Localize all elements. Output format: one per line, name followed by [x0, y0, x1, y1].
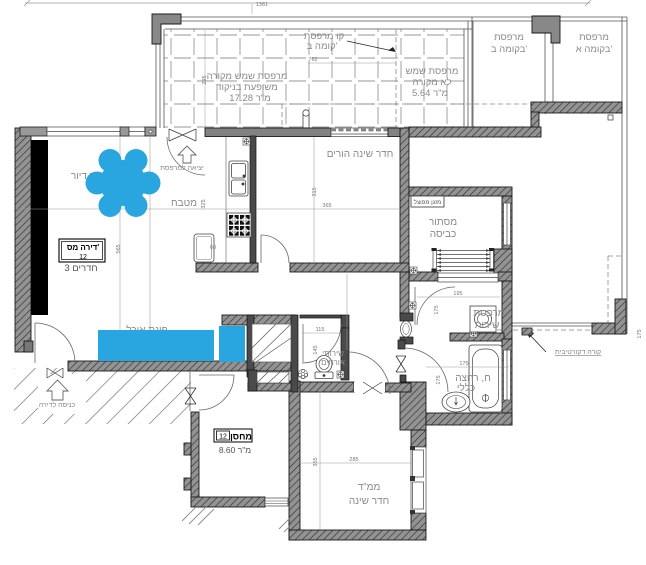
svg-text:115: 115: [316, 327, 325, 333]
svg-text:12: 12: [79, 254, 87, 261]
svg-text:175: 175: [459, 361, 468, 367]
svg-text:כביסה: כביסה: [430, 229, 456, 240]
svg-text:175: 175: [637, 329, 643, 338]
svg-text:355: 355: [313, 457, 319, 466]
svg-text:175: 175: [434, 305, 440, 314]
svg-text:3 חדרים: 3 חדרים: [64, 263, 97, 274]
svg-text:מסתור: מסתור: [429, 217, 457, 228]
svg-text:60: 60: [210, 245, 216, 251]
svg-text:מ"ר 5.64: מ"ר 5.64: [412, 88, 448, 99]
svg-text:לא מקורה: לא מקורה: [413, 76, 452, 88]
svg-text:1361: 1361: [256, 2, 268, 8]
svg-text:מ"ר 17.28: מ"ר 17.28: [229, 93, 270, 104]
svg-text:12: 12: [219, 434, 227, 441]
svg-text:משופעת בניקוד: משופעת בניקוד: [216, 82, 278, 93]
svg-text:בקומה א': בקומה א': [576, 44, 613, 55]
svg-text:285: 285: [349, 457, 358, 463]
svg-text:ממ"ד: ממ"ד: [358, 482, 381, 493]
svg-text:מרפסת: מרפסת: [494, 32, 524, 43]
svg-text:מרפסת: מרפסת: [579, 32, 609, 43]
svg-text:מרפסת: מרפסת: [473, 308, 505, 319]
svg-text:מרפסת שמש מקורה: מרפסת שמש מקורה: [207, 71, 288, 82]
svg-text:בקומה ב': בקומה ב': [491, 44, 527, 55]
svg-text:מ"ר 8.60: מ"ר 8.60: [219, 445, 251, 455]
svg-text:365: 365: [322, 203, 331, 209]
svg-text:מרפסת שמש: מרפסת שמש: [406, 66, 459, 77]
svg-text:יציאה למרפסת: יציאה למרפסת: [160, 164, 204, 172]
svg-text:175: 175: [436, 375, 442, 384]
svg-text:195: 195: [453, 291, 462, 297]
svg-text:קורה דקורטיבית: קורה דקורטיבית: [555, 349, 601, 356]
svg-text:762: 762: [308, 57, 317, 63]
svg-text:כניסה לדירה: כניסה לדירה: [39, 401, 76, 409]
svg-text:חדר שינה הורים: חדר שינה הורים: [327, 149, 394, 160]
svg-text:מזגן מפוצל: מזגן מפוצל: [414, 198, 442, 206]
svg-text:כללי: כללי: [457, 382, 475, 394]
svg-text:דירה מס': דירה מס': [67, 243, 99, 252]
svg-text:מחסן: מחסן: [230, 432, 252, 442]
svg-text:קומה ב': קומה ב': [307, 41, 338, 52]
svg-text:315: 315: [312, 187, 318, 196]
svg-text:295: 295: [202, 75, 208, 84]
svg-text:565: 565: [116, 244, 122, 253]
svg-text:מטבח: מטבח: [171, 198, 197, 209]
svg-text:חדר שינה: חדר שינה: [349, 496, 389, 507]
svg-text:325: 325: [201, 199, 207, 208]
svg-text:אורחים: אורחים: [321, 358, 345, 367]
svg-text:שירות: שירות: [475, 320, 500, 331]
svg-text:שירותי: שירותי: [322, 349, 344, 358]
svg-text:145: 145: [313, 345, 319, 354]
